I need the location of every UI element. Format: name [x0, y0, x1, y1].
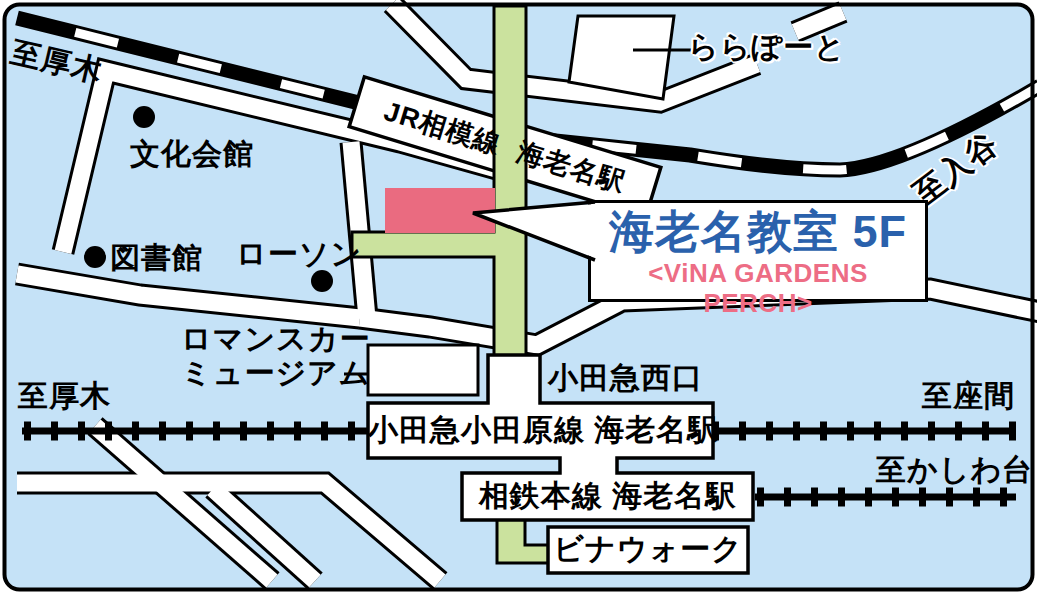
- classroom-callout-subtitle: <ViNA GARDENS PERCH>: [591, 258, 925, 318]
- label-bunka-kaikan: 文化会館: [130, 134, 254, 175]
- direction-zama: 至座間: [922, 376, 1015, 417]
- label-romancecar-line1: ロマンスカー: [181, 322, 371, 355]
- library-dot: [84, 246, 106, 268]
- direction-atsugi-bottom: 至厚木: [18, 376, 111, 417]
- sotetsu-station-label: 相鉄本線 海老名駅: [462, 471, 753, 520]
- classroom-callout: 海老名教室 5F <ViNA GARDENS PERCH>: [588, 200, 928, 302]
- museum-building: [368, 345, 478, 395]
- classroom-callout-title: 海老名教室 5F: [591, 206, 925, 258]
- label-library: 図書館: [110, 238, 203, 279]
- label-romancecar-line2: ミュージアム: [181, 356, 371, 389]
- label-vinawalk: ビナウォーク: [548, 525, 748, 573]
- label-lawson: ローソン: [236, 234, 362, 275]
- label-lalaport: ららぽーと: [688, 27, 846, 68]
- odakyu-station-label: 小田急小田原線 海老名駅: [368, 401, 713, 458]
- label-romancecar-museum: ロマンスカー ミュージアム: [181, 322, 371, 390]
- direction-kashiwadai: 至かしわ台: [876, 450, 1033, 491]
- callout-pointer: [455, 192, 600, 272]
- ebina-access-map: 至厚木 ららぽーと 至入谷 文化会館 図書館 ローソン ロマンスカー ミュージア…: [0, 0, 1037, 594]
- label-odakyu-west-exit: 小田急西口: [548, 358, 703, 399]
- bunka-kaikan-dot: [133, 106, 155, 128]
